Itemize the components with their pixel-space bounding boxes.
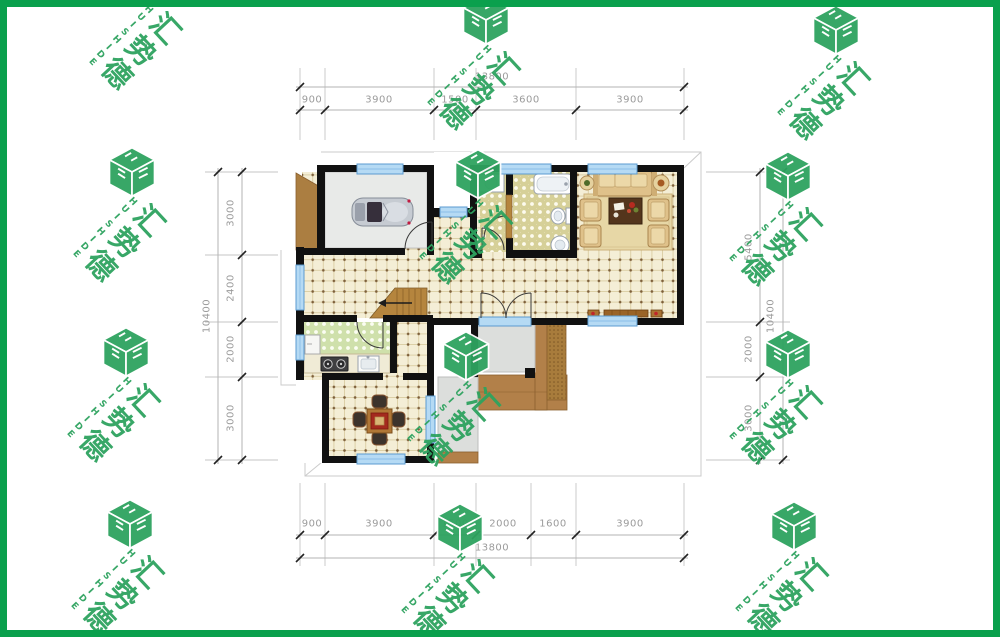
porch-step xyxy=(438,452,478,463)
dim-left-total: 10400 xyxy=(202,299,213,333)
sofa-set-icon xyxy=(580,170,672,250)
stove-icon xyxy=(321,357,348,371)
dim-right-seg-2: 3000 xyxy=(744,404,755,431)
bathroom-door-leaf xyxy=(506,195,512,238)
porch-walkway xyxy=(438,377,478,452)
bathtub-icon xyxy=(534,174,572,194)
dim-top-seg-1: 3900 xyxy=(365,95,392,106)
dim-left-seg-2: 2000 xyxy=(226,335,237,362)
coffee-table-icon xyxy=(609,198,642,224)
dim-right-total: 10400 xyxy=(766,299,777,333)
kitchen-sink-icon xyxy=(358,356,379,373)
dim-bottom-seg-0: 900 xyxy=(302,519,323,530)
dim-top-seg-4: 3900 xyxy=(616,95,643,106)
dim-left-seg-3: 3000 xyxy=(226,404,237,431)
dining-chair xyxy=(392,412,405,427)
dining-chair xyxy=(372,395,387,408)
dining-chair xyxy=(353,412,366,427)
dim-bottom-total: 13800 xyxy=(475,543,509,554)
entry-sill xyxy=(479,317,531,326)
dim-bottom-seg-3: 2000 xyxy=(489,519,516,530)
dim-left-seg-1: 2400 xyxy=(226,274,237,301)
dim-top-seg-2: 1500 xyxy=(441,95,468,106)
porch-platform xyxy=(478,325,535,372)
dim-top-seg-3: 3600 xyxy=(512,95,539,106)
dim-bottom-seg-2: 1500 xyxy=(441,519,468,530)
dim-right-seg-1: 2000 xyxy=(744,335,755,362)
dim-top-seg-0: 900 xyxy=(302,95,323,106)
dim-bottom-seg-1: 3900 xyxy=(365,519,392,530)
dim-bottom-seg-4: 1600 xyxy=(539,519,566,530)
dining-chair xyxy=(372,432,387,445)
entry-porch xyxy=(438,320,567,463)
dim-top-total: 13800 xyxy=(475,72,509,83)
vanity-sink-icon xyxy=(479,174,504,192)
car-icon xyxy=(352,198,413,226)
dim-right-seg-0: 5400 xyxy=(744,233,755,260)
floorplan-drawing xyxy=(0,0,1000,637)
dim-bottom-seg-5: 3900 xyxy=(616,519,643,530)
dim-left-seg-0: 3000 xyxy=(226,199,237,226)
floorplan-page: 13800 900 3900 1500 3600 3900 900 3900 1… xyxy=(0,0,1000,637)
